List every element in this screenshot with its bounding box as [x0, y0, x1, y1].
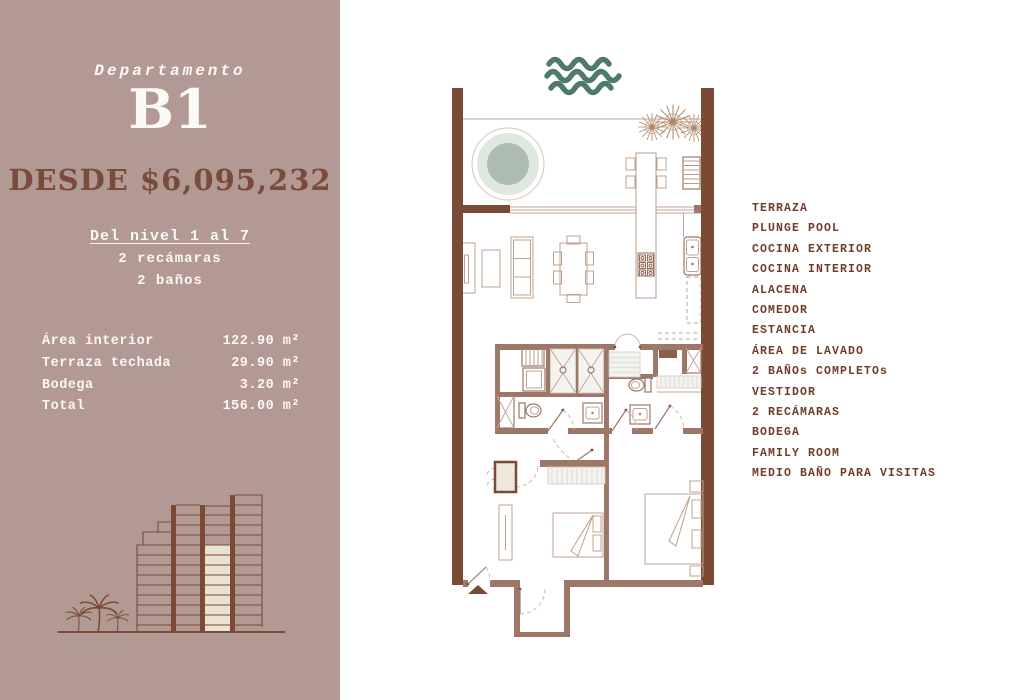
wall — [694, 205, 701, 213]
wardrobe-closet — [548, 467, 605, 484]
area-value: 122.90 m² — [223, 331, 300, 353]
levels-text: Del nivel 1 al 7 — [0, 228, 340, 245]
bathrooms-text: 2 baños — [0, 273, 340, 289]
shower — [551, 349, 576, 393]
feature-item: 2 BAÑOs COMPLETOs — [752, 362, 936, 382]
shower — [579, 349, 604, 393]
counter-dashes — [658, 333, 700, 339]
building-column — [171, 505, 176, 632]
feature-item: BODEGA — [752, 423, 936, 443]
area-row: Terraza techada 29.90 m² — [42, 353, 300, 375]
grill-icon — [683, 157, 700, 189]
corner-closet — [495, 462, 516, 492]
waves-icon — [547, 60, 619, 93]
shelf-closet — [609, 352, 640, 377]
toilet-icon — [629, 378, 651, 392]
bed — [553, 513, 603, 557]
floor-plan — [440, 45, 730, 645]
washer-icon — [522, 348, 545, 391]
feature-item: COMEDOR — [752, 301, 936, 321]
wardrobe-closet — [657, 376, 701, 392]
feature-item: MEDIO BAÑO PARA VISITAS — [752, 464, 936, 484]
palm-trees-icon — [66, 595, 129, 632]
sofa — [511, 237, 533, 298]
area-row: Bodega 3.20 m² — [42, 375, 300, 397]
kitchen-island — [636, 153, 656, 298]
area-value: 3.20 m² — [240, 375, 300, 397]
dining-table — [554, 236, 594, 303]
sink-icon — [630, 405, 650, 424]
feature-item: ALACENA — [752, 281, 936, 301]
feature-item: COCINA EXTERIOR — [752, 240, 936, 260]
feature-item: ÁREA DE LAVADO — [752, 342, 936, 362]
wall-left — [452, 88, 463, 585]
area-label: Área interior — [42, 331, 154, 353]
area-label: Total — [42, 396, 85, 418]
price-text: DESDE $6,095,232 — [0, 163, 340, 197]
feature-item: ESTANCIA — [752, 321, 936, 341]
building-left-section — [137, 522, 173, 632]
area-label: Terraza techada — [42, 353, 171, 375]
sliding-door — [510, 207, 701, 213]
feature-item: VESTIDOR — [752, 383, 936, 403]
feature-item: FAMILY ROOM — [752, 444, 936, 464]
building-right-section — [235, 495, 262, 627]
entry-arrow-icon — [468, 585, 488, 594]
plunge-pool — [472, 128, 544, 200]
building-mid-section — [176, 505, 200, 625]
bed — [645, 481, 703, 576]
area-row: Área interior 122.90 m² — [42, 331, 300, 353]
feature-item: PLUNGE POOL — [752, 219, 936, 239]
building-illustration — [40, 470, 320, 670]
dresser — [499, 505, 512, 560]
bottom-walls — [463, 580, 703, 637]
bedrooms-text: 2 recámaras — [0, 251, 340, 267]
area-label: Bodega — [42, 375, 94, 397]
toilet-icon — [519, 403, 541, 418]
area-row: Total 156.00 m² — [42, 396, 300, 418]
plant-icon — [638, 105, 708, 143]
shelf — [659, 350, 677, 358]
brochure-page: Departamento B1 DESDE $6,095,232 Del niv… — [0, 0, 1024, 700]
unit-stack-highlight — [205, 506, 230, 632]
unit-name: B1 — [0, 82, 340, 136]
info-panel: Departamento B1 DESDE $6,095,232 Del niv… — [0, 0, 340, 700]
feature-item: COCINA INTERIOR — [752, 260, 936, 280]
areas-table: Área interior 122.90 m² Terraza techada … — [42, 331, 300, 418]
area-value: 29.90 m² — [231, 353, 300, 375]
wall — [540, 460, 608, 467]
wall — [463, 205, 510, 213]
kitchen-sink-icon — [684, 237, 701, 275]
feature-item: 2 RECÁMARAS — [752, 403, 936, 423]
building-column — [200, 505, 205, 633]
building-column — [230, 495, 235, 633]
closet-x — [686, 348, 701, 373]
feature-item: TERRAZA — [752, 199, 936, 219]
sink-icon — [583, 403, 602, 423]
feature-list: TERRAZA PLUNGE POOL COCINA EXTERIOR COCI… — [752, 199, 936, 485]
refrigerator — [687, 277, 701, 323]
area-value: 156.00 m² — [223, 396, 300, 418]
coffee-table — [482, 250, 500, 287]
